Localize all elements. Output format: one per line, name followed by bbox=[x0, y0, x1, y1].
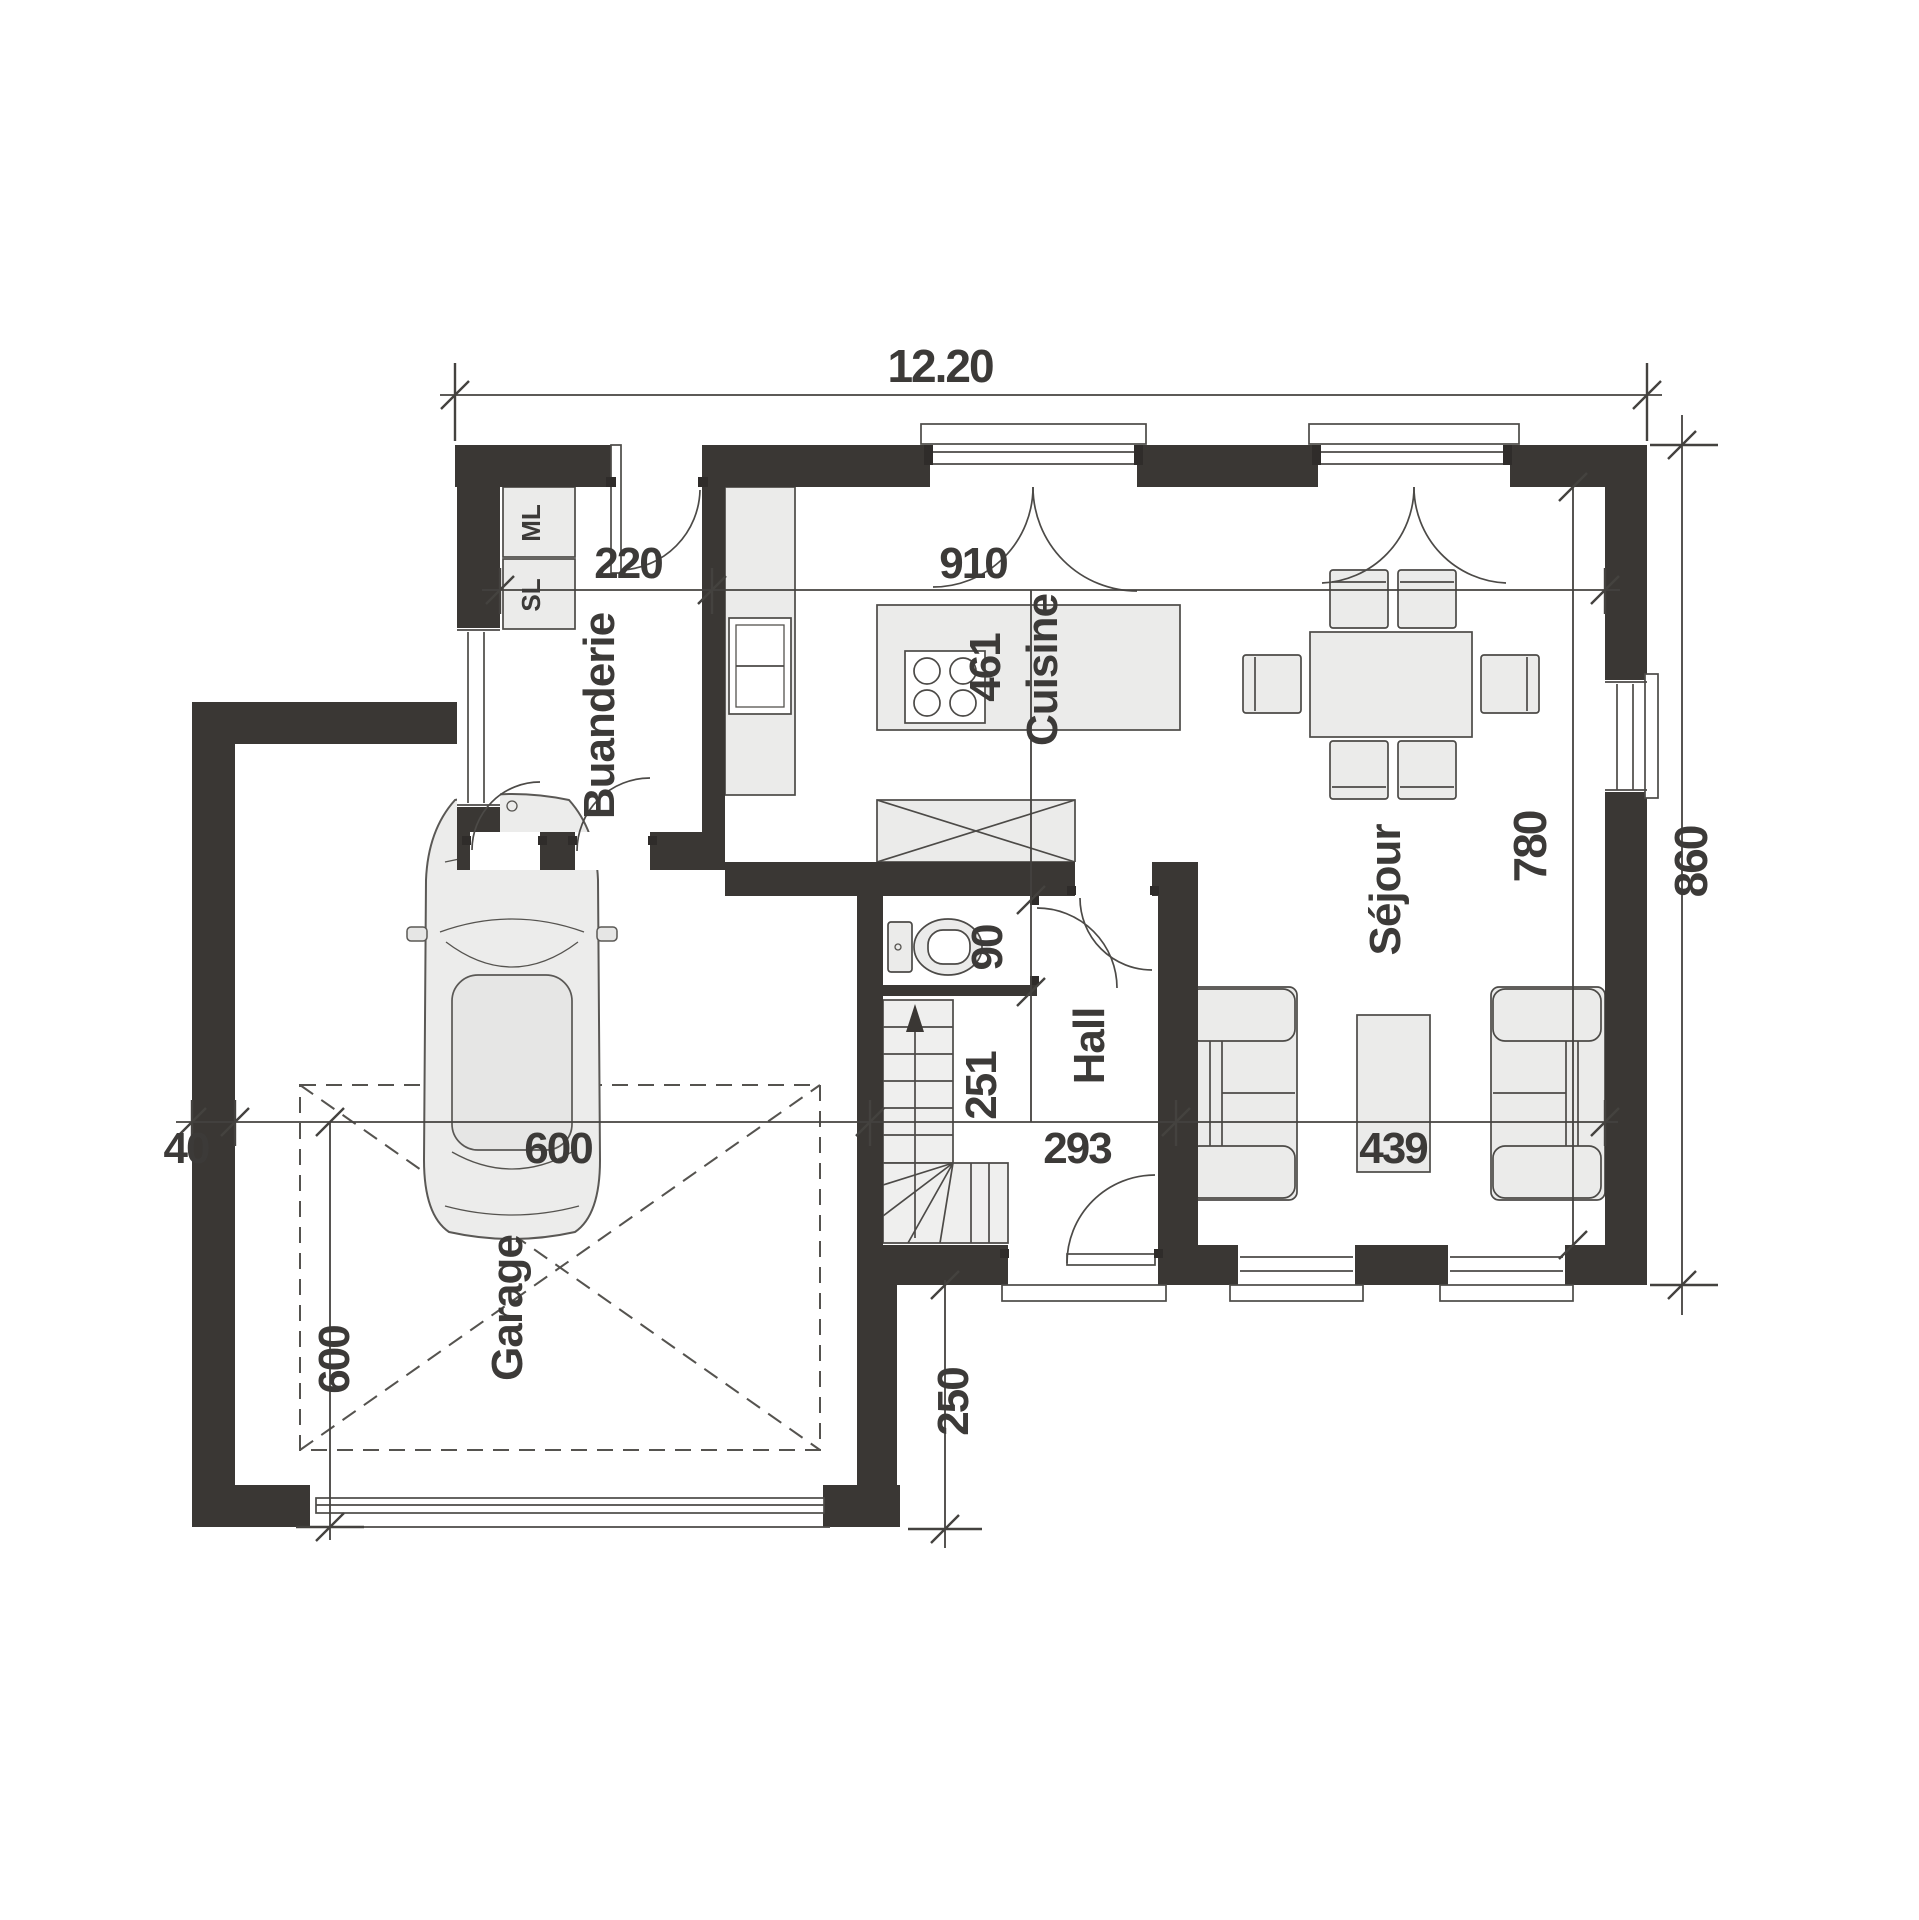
dim-sejour-depth: 780 bbox=[1504, 811, 1556, 882]
wardrobe bbox=[877, 800, 1075, 862]
dim-buanderie-width: 220 bbox=[594, 539, 662, 588]
room-label-cuisine: Cuisine bbox=[1018, 594, 1067, 746]
floor-plan: 12.20 220 910 40 600 293 439 860 780 90 … bbox=[0, 0, 1919, 1920]
window-sejour-south-2 bbox=[1440, 1245, 1573, 1301]
window-buanderie bbox=[457, 628, 500, 807]
dining-set bbox=[1243, 570, 1539, 799]
appliance-label-dryer: SL bbox=[516, 578, 546, 611]
window-sejour-south-1 bbox=[1230, 1245, 1363, 1301]
room-label-buanderie: Buanderie bbox=[575, 613, 624, 819]
dim-wall-offset: 40 bbox=[164, 1124, 209, 1173]
room-label-garage: Garage bbox=[483, 1235, 532, 1381]
room-label-sejour: Séjour bbox=[1361, 824, 1410, 956]
room-label-hall: Hall bbox=[1065, 1008, 1114, 1085]
car-mirror-right bbox=[597, 927, 617, 941]
dim-living-width: 910 bbox=[939, 539, 1007, 588]
appliance-label-washer: ML bbox=[516, 504, 546, 542]
french-door-sejour bbox=[1309, 424, 1519, 583]
window-sejour-east bbox=[1605, 674, 1658, 798]
door-hall-kitchen bbox=[1067, 862, 1159, 970]
dining-chair bbox=[1330, 570, 1388, 628]
kitchen-tall-units bbox=[725, 487, 795, 795]
door-wc bbox=[1030, 896, 1117, 988]
dining-table bbox=[1310, 632, 1472, 737]
garage-door bbox=[310, 1485, 830, 1527]
dim-sejour-bottom-width: 439 bbox=[1359, 1124, 1427, 1173]
car-mirror-left bbox=[407, 927, 427, 941]
dim-garage-depth: 600 bbox=[310, 1326, 359, 1394]
dining-chair bbox=[1330, 741, 1388, 799]
dim-hall-width: 293 bbox=[1043, 1124, 1111, 1173]
dining-chair bbox=[1398, 570, 1456, 628]
dim-overall-depth: 860 bbox=[1665, 826, 1717, 897]
dim-hall-depth: 251 bbox=[957, 1051, 1006, 1120]
dim-porch-depth: 250 bbox=[929, 1368, 978, 1436]
dim-island-length: 461 bbox=[961, 633, 1010, 702]
sofa-left bbox=[1183, 987, 1297, 1200]
dining-chair bbox=[1398, 741, 1456, 799]
front-door bbox=[1000, 1175, 1166, 1301]
sofa-right bbox=[1491, 987, 1605, 1200]
dim-garage-width: 600 bbox=[524, 1124, 592, 1173]
dining-chair bbox=[1243, 655, 1301, 713]
dim-overall-width: 12.20 bbox=[887, 340, 993, 392]
dining-chair bbox=[1481, 655, 1539, 713]
floor-plan-page: 12.20 220 910 40 600 293 439 860 780 90 … bbox=[0, 0, 1919, 1920]
dim-wc-depth: 90 bbox=[963, 925, 1012, 970]
